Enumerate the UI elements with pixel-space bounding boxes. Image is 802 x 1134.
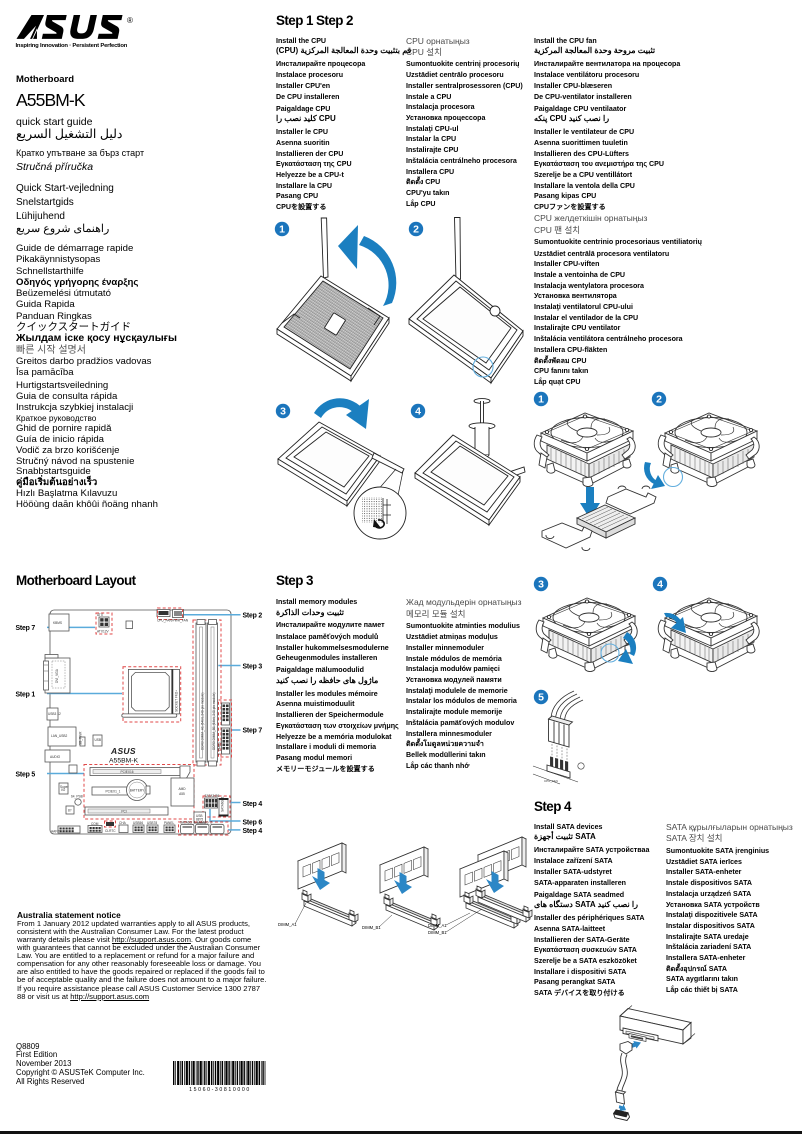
svg-text:PANEL: PANEL	[164, 821, 174, 825]
svg-text:2: 2	[656, 394, 662, 406]
svg-text:LAN_USB2: LAN_USB2	[51, 734, 68, 738]
svg-text:COM: COM	[91, 822, 99, 826]
svg-text:CPU_FAN/PWR_FAN: CPU_FAN/PWR_FAN	[157, 619, 189, 623]
svg-text:USB3 12: USB3 12	[48, 712, 61, 716]
svg-text:DIMM_A1: DIMM_A1	[428, 923, 447, 928]
svg-text:4: 4	[415, 406, 421, 418]
svg-text:Step 7: Step 7	[243, 728, 263, 735]
svg-text:AAFP: AAFP	[51, 830, 59, 834]
svg-text:5: 5	[538, 692, 544, 704]
svg-text:PCIEX16: PCIEX16	[120, 770, 133, 774]
svg-text:DVI_VGA: DVI_VGA	[55, 668, 59, 683]
svg-text:DDR3 DIMM_B1 (64bit, 240-pin m: DDR3 DIMM_B1 (64bit, 240-pin module)	[212, 693, 216, 750]
svg-text:4: 4	[657, 579, 663, 591]
svg-text:ASUS: ASUS	[110, 746, 136, 756]
svg-text:DIMM_B1: DIMM_B1	[428, 930, 447, 935]
svg-text:SB_PWR: SB_PWR	[79, 731, 83, 745]
svg-text:ATX12V: ATX12V	[97, 630, 110, 634]
svg-text:15060-30810000: 15060-30810000	[189, 1087, 251, 1093]
svg-text:Step 4: Step 4	[243, 828, 263, 835]
svg-text:SATA6G_1: SATA6G_1	[221, 796, 225, 812]
svg-text:Step 1: Step 1	[16, 692, 36, 699]
svg-text:Step 6: Step 6	[243, 819, 263, 826]
svg-text:Inspiring Innovation · Persist: Inspiring Innovation · Persistent Perfec…	[16, 43, 128, 49]
svg-text:3: 3	[538, 579, 544, 591]
svg-text:SATA6G_1 SATA6G_2: SATA6G_1 SATA6G_2	[180, 821, 212, 825]
svg-text:64_PSB: 64_PSB	[71, 795, 83, 799]
svg-text:A55: A55	[179, 792, 185, 796]
svg-text:Step 7: Step 7	[16, 625, 36, 632]
svg-text:CHA: CHA	[119, 821, 127, 825]
svg-text:DDR3 DIMM_A1 (64bit, 240-pin m: DDR3 DIMM_A1 (64bit, 240-pin module)	[201, 693, 205, 750]
svg-text:USB56: USB56	[133, 821, 143, 825]
svg-text:Step 2: Step 2	[243, 612, 263, 619]
svg-text:Step 4: Step 4	[243, 801, 263, 808]
svg-text:KBMS: KBMS	[53, 621, 62, 625]
svg-text:AUDIO: AUDIO	[50, 755, 61, 759]
svg-text:USB78: USB78	[147, 821, 157, 825]
svg-text:2: 2	[413, 224, 419, 236]
svg-text:DIMM_A1: DIMM_A1	[278, 922, 297, 927]
svg-text:1: 1	[279, 224, 285, 236]
svg-text:I/O: I/O	[61, 788, 66, 792]
svg-text:F_PANEL: F_PANEL	[218, 741, 222, 755]
svg-text:BATTERY: BATTERY	[130, 789, 145, 793]
svg-text:AMD: AMD	[178, 787, 186, 791]
svg-text:USB: USB	[95, 738, 102, 742]
svg-text:Step 3: Step 3	[243, 664, 263, 671]
svg-text:®: ®	[127, 16, 133, 25]
svg-text:ATX: ATX	[97, 613, 104, 617]
svg-text:8?: 8?	[68, 809, 72, 813]
svg-text:Step 5: Step 5	[16, 772, 36, 779]
svg-text:DIMM_B1: DIMM_B1	[362, 925, 381, 930]
svg-text:CPU_FAN: CPU_FAN	[544, 779, 558, 783]
svg-text:1: 1	[538, 394, 544, 406]
svg-text:3: 3	[280, 406, 286, 418]
svg-text:CLRTC: CLRTC	[105, 829, 116, 833]
svg-text:PCIEX1_1: PCIEX1_1	[106, 790, 121, 794]
svg-text:A55BM-K: A55BM-K	[109, 758, 139, 765]
svg-text:PCI: PCI	[121, 810, 126, 814]
svg-text:SOCKET FM2+: SOCKET FM2+	[175, 690, 179, 712]
svg-text:SATA3456: SATA3456	[205, 794, 220, 798]
